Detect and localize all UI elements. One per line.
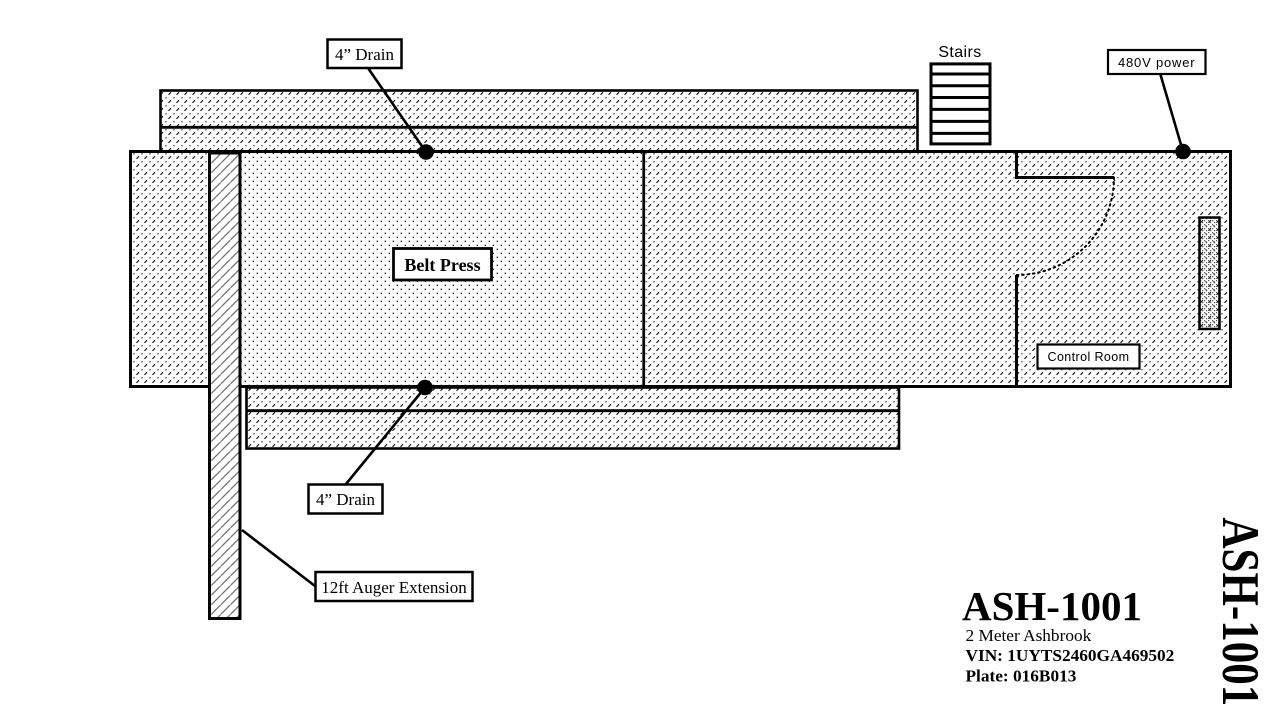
svg-text:Plate: 016B013: Plate: 016B013: [966, 667, 1077, 686]
svg-text:Belt Press: Belt Press: [404, 255, 480, 275]
svg-text:VIN: 1UYTS2460GA469502: VIN: 1UYTS2460GA469502: [966, 646, 1175, 665]
svg-text:ASH-1001: ASH-1001: [1211, 518, 1269, 707]
svg-text:480V power: 480V power: [1118, 55, 1195, 70]
svg-text:Stairs: Stairs: [938, 44, 981, 61]
svg-text:2 Meter Ashbrook: 2 Meter Ashbrook: [966, 626, 1092, 645]
svg-text:ASH-1001: ASH-1001: [962, 583, 1142, 629]
svg-text:12ft Auger Extension: 12ft Auger Extension: [321, 578, 467, 597]
svg-text:4” Drain: 4” Drain: [316, 490, 376, 509]
svg-text:Control Room: Control Room: [1048, 350, 1130, 364]
svg-text:4” Drain: 4” Drain: [335, 45, 395, 64]
